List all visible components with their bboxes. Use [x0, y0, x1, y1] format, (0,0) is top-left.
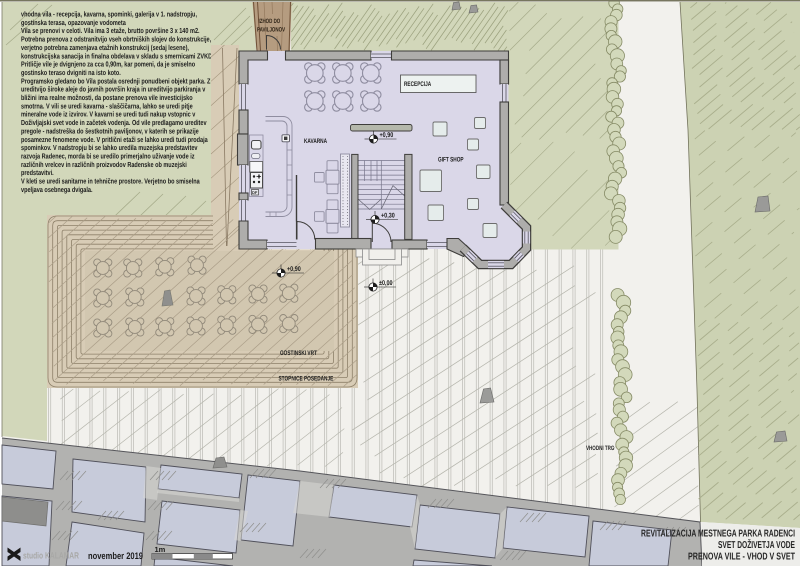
- svg-text:STOPNICE POSEDANJE: STOPNICE POSEDANJE: [279, 376, 334, 383]
- svg-text:RECEPCIJA: RECEPCIJA: [404, 81, 431, 88]
- svg-text:PRENOVA VILE - VHOD V SVET: PRENOVA VILE - VHOD V SVET: [688, 552, 795, 563]
- svg-text:REVITALIZACIJA MESTNEGA PARKA: REVITALIZACIJA MESTNEGA PARKA RADENCI: [641, 529, 795, 540]
- svg-text:DF: DF: [252, 190, 258, 195]
- svg-text:+0,90: +0,90: [380, 132, 394, 139]
- svg-text:vpeljava osebnega dvigala.: vpeljava osebnega dvigala.: [21, 185, 93, 194]
- svg-text:SVET DOŽIVETJA VODE: SVET DOŽIVETJA VODE: [718, 539, 795, 551]
- svg-text:GIFT SHOP: GIFT SHOP: [438, 157, 464, 164]
- svg-text:VHODNI TRG: VHODNI TRG: [586, 445, 615, 452]
- svg-text:KAVARNA: KAVARNA: [304, 138, 327, 145]
- svg-text:±0,00: ±0,00: [379, 280, 393, 287]
- svg-text:+0,90: +0,90: [287, 266, 301, 273]
- svg-text:GOSTINSKI VRT: GOSTINSKI VRT: [280, 350, 317, 357]
- svg-text:PAVILJONOV: PAVILJONOV: [257, 27, 286, 34]
- svg-text:studio KALAMAR: studio KALAMAR: [23, 551, 79, 561]
- svg-text:IZHOD DO: IZHOD DO: [259, 18, 281, 25]
- svg-text:1m: 1m: [155, 545, 166, 554]
- svg-text:november 2019: november 2019: [88, 551, 143, 562]
- svg-text:+0,30: +0,30: [381, 212, 395, 219]
